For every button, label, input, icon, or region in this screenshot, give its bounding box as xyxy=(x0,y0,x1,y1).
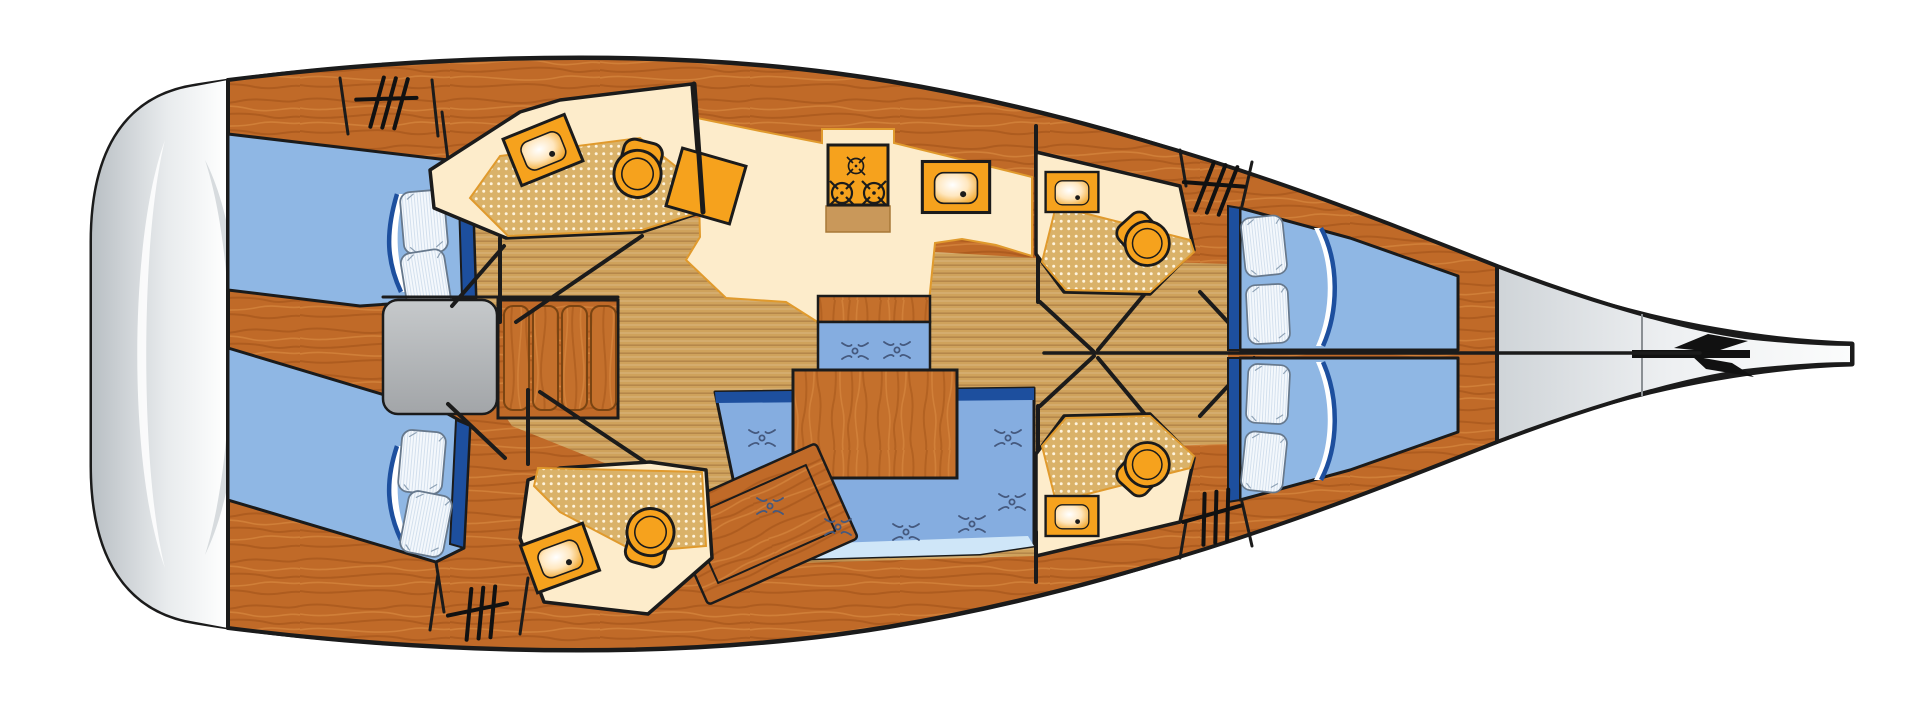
pillow xyxy=(1240,215,1288,278)
pillow xyxy=(1246,283,1291,344)
floorplan-canvas xyxy=(0,0,1920,708)
pillow xyxy=(1240,431,1288,494)
bench-cushion xyxy=(818,322,930,372)
stove-top xyxy=(828,145,888,205)
step-tread xyxy=(591,306,616,410)
bench-seat xyxy=(818,296,930,372)
counter-step xyxy=(826,206,890,232)
sink-icon xyxy=(1046,172,1099,212)
washbasin xyxy=(1046,496,1099,536)
galley-sink xyxy=(922,162,989,213)
pillow xyxy=(397,429,446,495)
pillow xyxy=(1246,363,1291,424)
bench-backrest xyxy=(818,296,930,322)
sink-icon xyxy=(922,162,989,213)
step-tread xyxy=(562,306,587,410)
engine-box xyxy=(383,300,497,414)
yacht-floorplan xyxy=(0,0,1920,708)
mattress-edge xyxy=(1228,358,1240,502)
mattress-edge xyxy=(1228,206,1240,350)
washbasin xyxy=(1046,172,1099,212)
sink-icon xyxy=(1046,496,1099,536)
companionway-steps xyxy=(498,300,618,418)
swim-platform xyxy=(92,80,240,628)
stove xyxy=(828,145,888,205)
